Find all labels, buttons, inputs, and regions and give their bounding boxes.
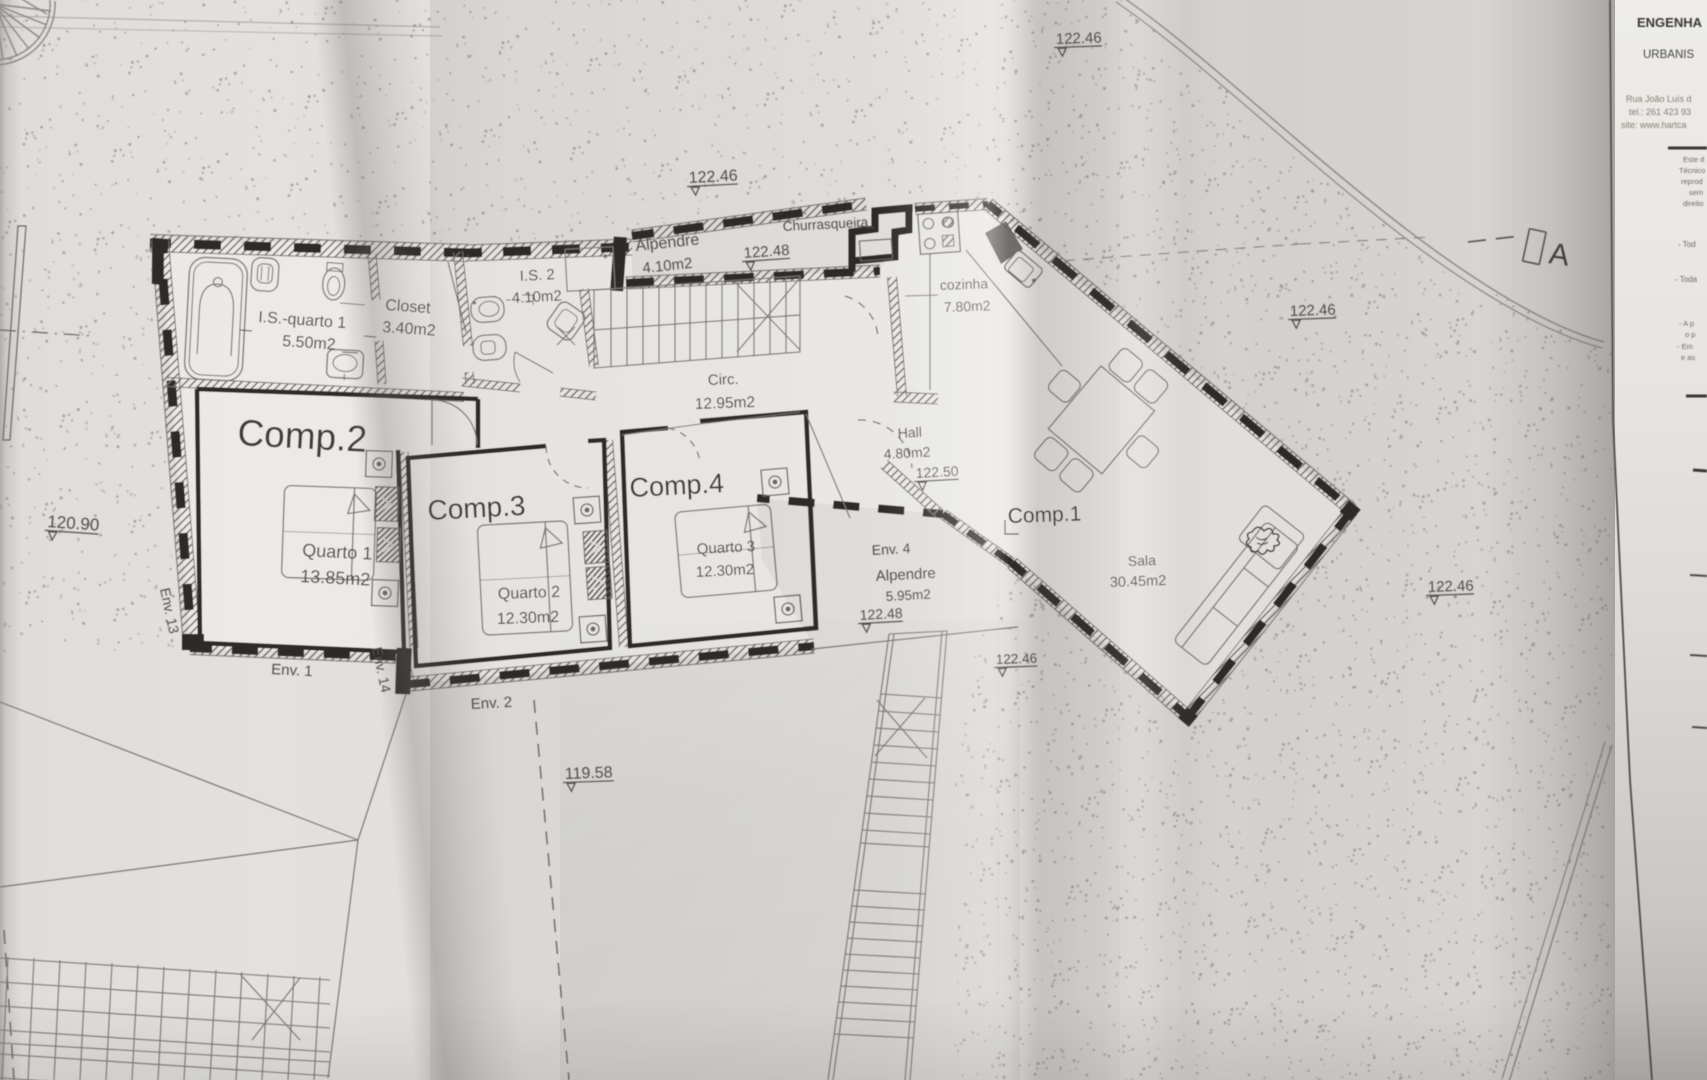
svg-text:sem: sem — [1689, 188, 1703, 197]
svg-text:direito: direito — [1683, 199, 1703, 208]
svg-text:Rua João Luís d: Rua João Luís d — [1626, 94, 1692, 104]
svg-text:reprod: reprod — [1681, 177, 1703, 186]
svg-text:site: www.hartca: site: www.hartca — [1621, 120, 1687, 130]
svg-text:119.58: 119.58 — [565, 764, 613, 783]
svg-text:122.46: 122.46 — [1056, 29, 1102, 48]
svg-text:122.46: 122.46 — [1428, 577, 1474, 596]
svg-text:URBANIS: URBANIS — [1643, 49, 1694, 61]
svg-text:12.30m2: 12.30m2 — [695, 561, 754, 581]
svg-text:tel.: 261 423 93: tel.: 261 423 93 — [1629, 107, 1691, 117]
svg-text:Env. 2: Env. 2 — [470, 694, 512, 713]
svg-text:- Tod: - Tod — [1678, 240, 1696, 249]
svg-text:122.46: 122.46 — [1290, 301, 1336, 320]
svg-text:4.10m2: 4.10m2 — [511, 287, 562, 307]
svg-text:o p: o p — [1685, 330, 1695, 339]
svg-text:I.S. 2: I.S. 2 — [519, 266, 555, 285]
svg-text:Env. 1: Env. 1 — [271, 661, 313, 680]
svg-text:12.95m2: 12.95m2 — [695, 394, 756, 413]
svg-text:Alpendre: Alpendre — [875, 565, 936, 585]
svg-text:4.10m2: 4.10m2 — [642, 255, 694, 277]
svg-text:Técnico: Técnico — [1679, 166, 1705, 175]
svg-text:122.48: 122.48 — [859, 605, 903, 623]
svg-text:12.30m2: 12.30m2 — [497, 609, 560, 628]
svg-text:- Em: - Em — [1677, 342, 1693, 351]
svg-text:Comp.1: Comp.1 — [1007, 502, 1081, 528]
svg-text:cozinha: cozinha — [940, 275, 989, 293]
svg-text:Comp.4: Comp.4 — [629, 468, 725, 503]
svg-text:7.80m2: 7.80m2 — [944, 297, 991, 315]
svg-text:5.95m2: 5.95m2 — [885, 587, 931, 604]
svg-text:Circ.: Circ. — [708, 371, 739, 389]
svg-text:4.80m2: 4.80m2 — [883, 444, 931, 462]
svg-text:Env. 4: Env. 4 — [871, 540, 911, 558]
svg-text:A: A — [1547, 237, 1571, 272]
svg-text:- A p: - A p — [1679, 319, 1694, 328]
svg-text:Hall: Hall — [897, 424, 922, 441]
svg-text:Quarto 2: Quarto 2 — [498, 584, 561, 603]
svg-text:Este d: Este d — [1683, 155, 1704, 164]
svg-text:Sala: Sala — [1128, 552, 1157, 569]
svg-text:ENGENHA: ENGENHA — [1637, 15, 1703, 30]
svg-text:Closet: Closet — [385, 297, 432, 317]
svg-text:Quarto 1: Quarto 1 — [302, 540, 373, 564]
svg-text:122.46: 122.46 — [996, 651, 1038, 667]
svg-text:Comp.2: Comp.2 — [237, 412, 369, 460]
svg-text:Quarto 3: Quarto 3 — [696, 538, 755, 558]
svg-text:30.45m2: 30.45m2 — [1110, 573, 1167, 591]
svg-text:Comp.3: Comp.3 — [427, 490, 527, 526]
svg-text:13.85m2: 13.85m2 — [300, 566, 371, 590]
svg-text:- Toda: - Toda — [1675, 275, 1698, 284]
svg-text:122.50: 122.50 — [915, 463, 959, 481]
svg-text:e as: e as — [1681, 353, 1695, 362]
